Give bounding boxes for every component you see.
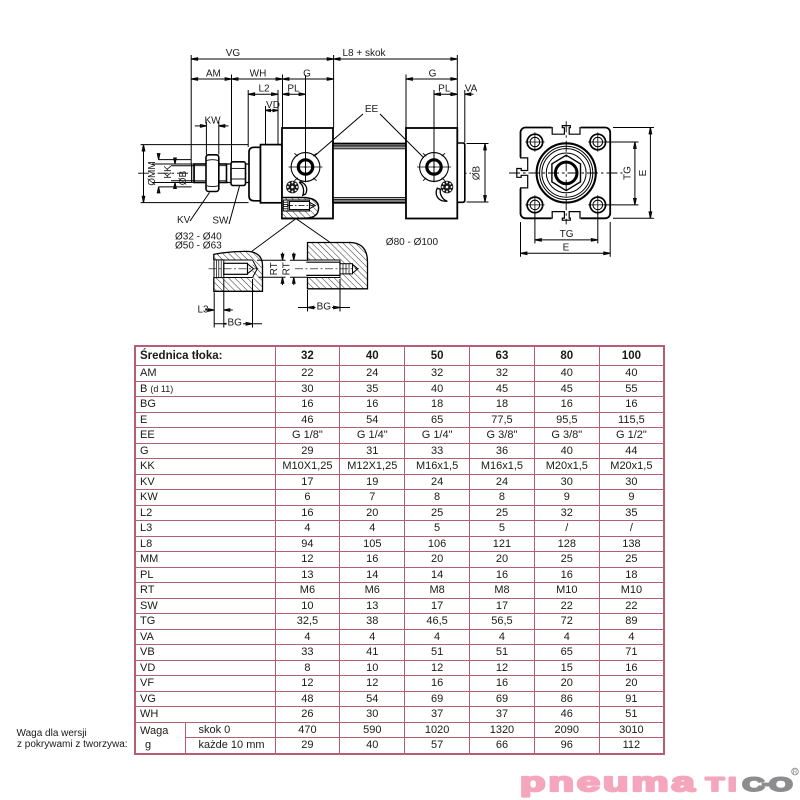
svg-text:TG: TG [560, 229, 574, 240]
svg-text:SW: SW [212, 216, 229, 227]
svg-text:E: E [563, 243, 570, 254]
svg-text:ØMM: ØMM [147, 161, 158, 185]
svg-text:Ø80 - Ø100: Ø80 - Ø100 [386, 237, 439, 248]
svg-text:AM: AM [206, 69, 221, 80]
svg-text:G: G [303, 69, 311, 80]
svg-text:BG: BG [227, 318, 242, 329]
svg-text:TG: TG [623, 166, 634, 180]
svg-text:ØB: ØB [472, 165, 483, 180]
svg-text:VG: VG [226, 48, 241, 59]
svg-text:ØB: ØB [178, 170, 189, 185]
svg-text:RT: RT [281, 262, 292, 275]
svg-text:EE: EE [365, 104, 379, 115]
svg-text:BG: BG [317, 301, 332, 312]
svg-text:WH: WH [250, 69, 267, 80]
svg-text:KV: KV [177, 215, 191, 226]
svg-text:E: E [638, 169, 649, 176]
svg-text:L2: L2 [258, 84, 270, 95]
svg-text:C: C [742, 775, 764, 796]
svg-text:VA: VA [465, 84, 478, 95]
svg-text:R: R [793, 769, 798, 776]
svg-text:pneuma: pneuma [520, 769, 698, 797]
svg-text:L8 + skok: L8 + skok [342, 48, 386, 59]
svg-text:PL: PL [287, 84, 300, 95]
svg-text:KK: KK [163, 165, 174, 179]
svg-text:RT: RT [269, 262, 280, 275]
svg-text:G: G [429, 69, 437, 80]
svg-text:O: O [769, 775, 793, 796]
svg-text:VD: VD [266, 100, 280, 111]
svg-text:TI: TI [706, 775, 741, 796]
svg-text:Ø50 - Ø63: Ø50 - Ø63 [175, 241, 222, 252]
svg-text:KW: KW [204, 115, 221, 126]
svg-text:L3: L3 [198, 305, 210, 316]
svg-text:PL: PL [438, 84, 451, 95]
